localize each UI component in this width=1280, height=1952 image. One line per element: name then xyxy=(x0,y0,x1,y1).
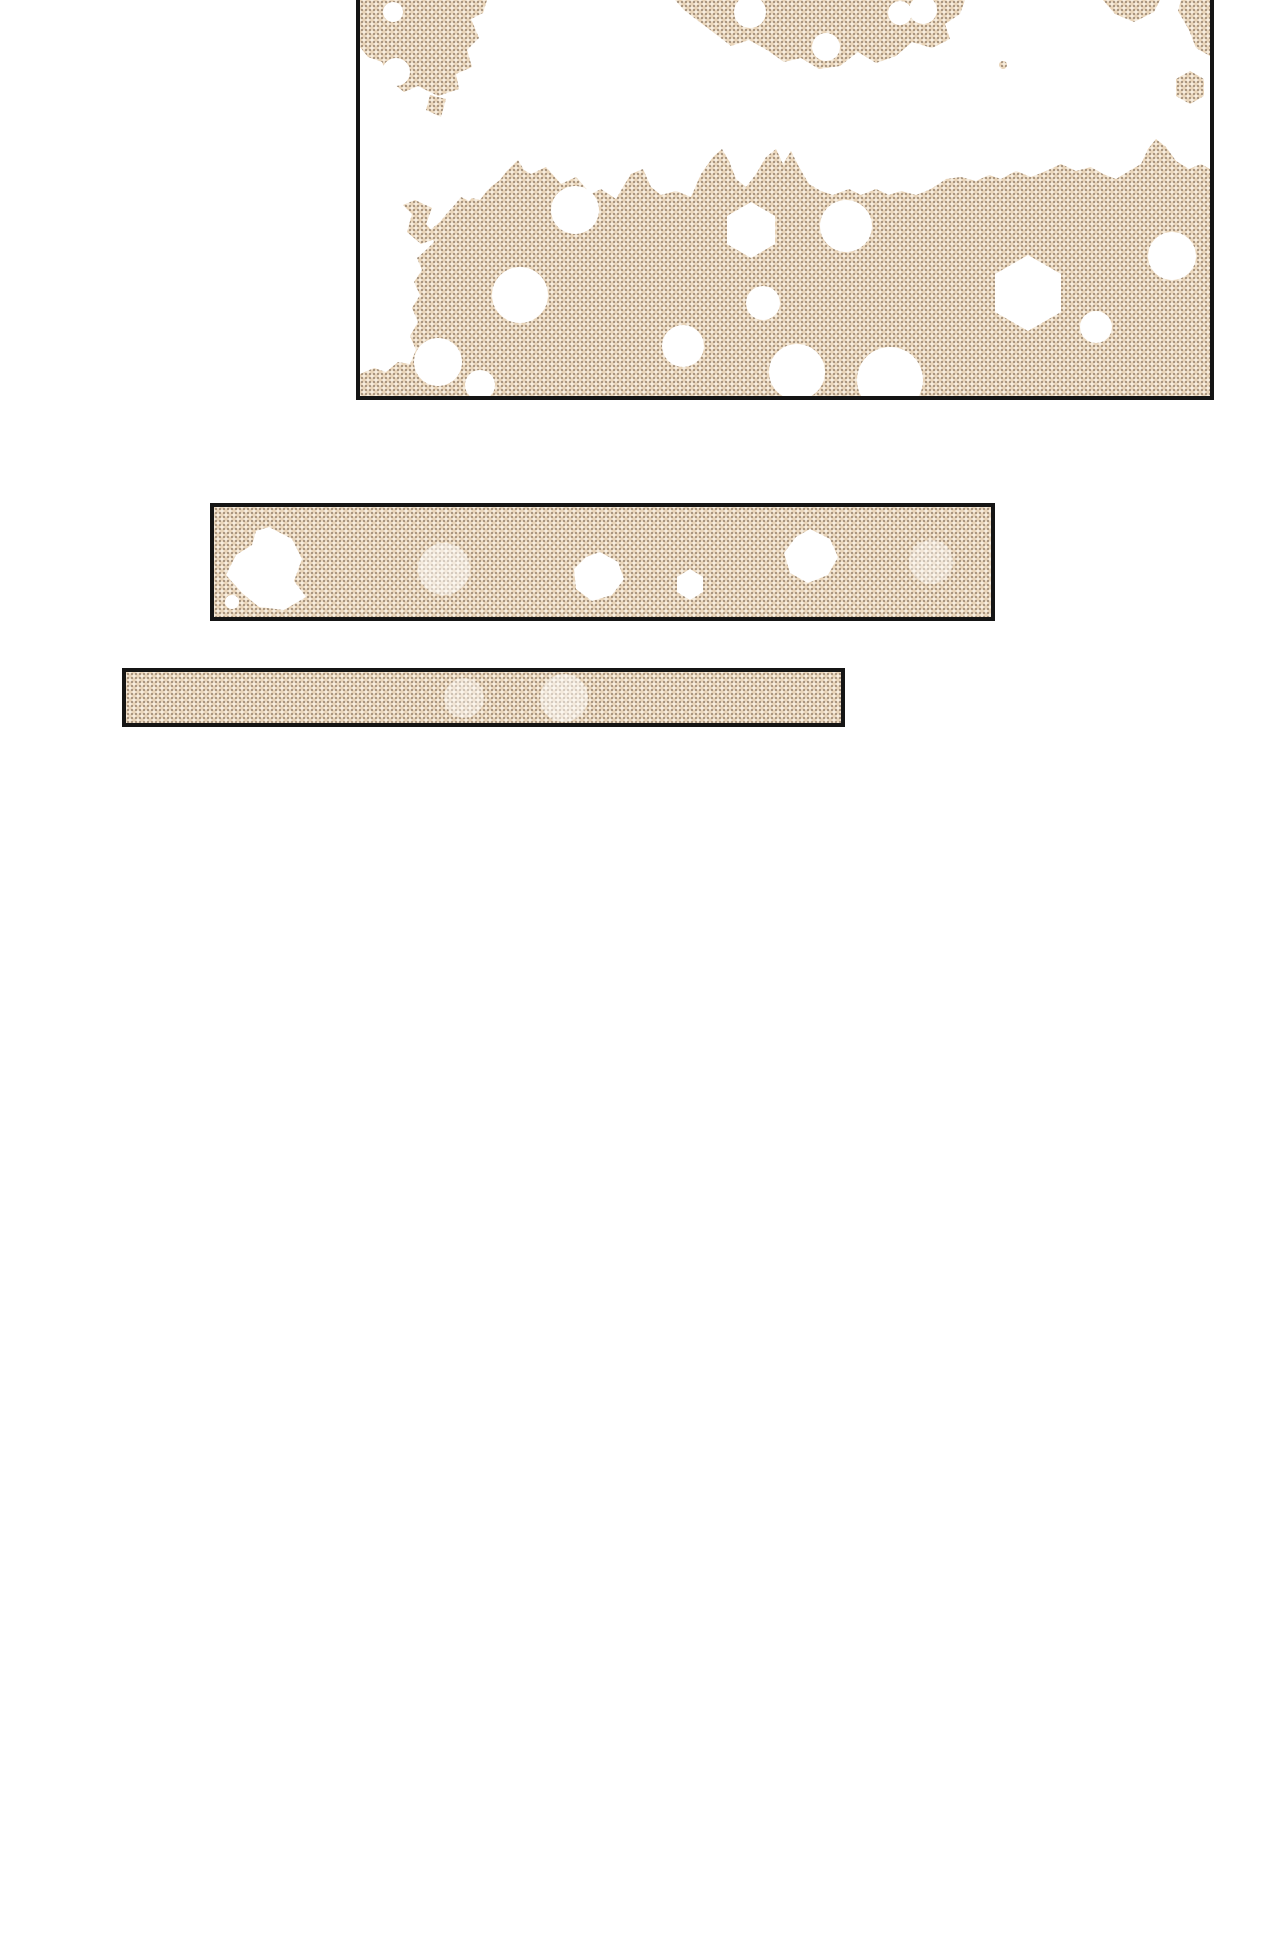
halftone-strip-artwork xyxy=(214,507,991,617)
main-art-panel xyxy=(356,0,1214,400)
comic-page xyxy=(0,0,1280,1952)
halftone-cloud-artwork xyxy=(360,0,1210,396)
halftone-bar-artwork xyxy=(126,672,841,723)
wide-strip-panel xyxy=(210,503,995,621)
thin-strip-panel xyxy=(122,668,845,727)
